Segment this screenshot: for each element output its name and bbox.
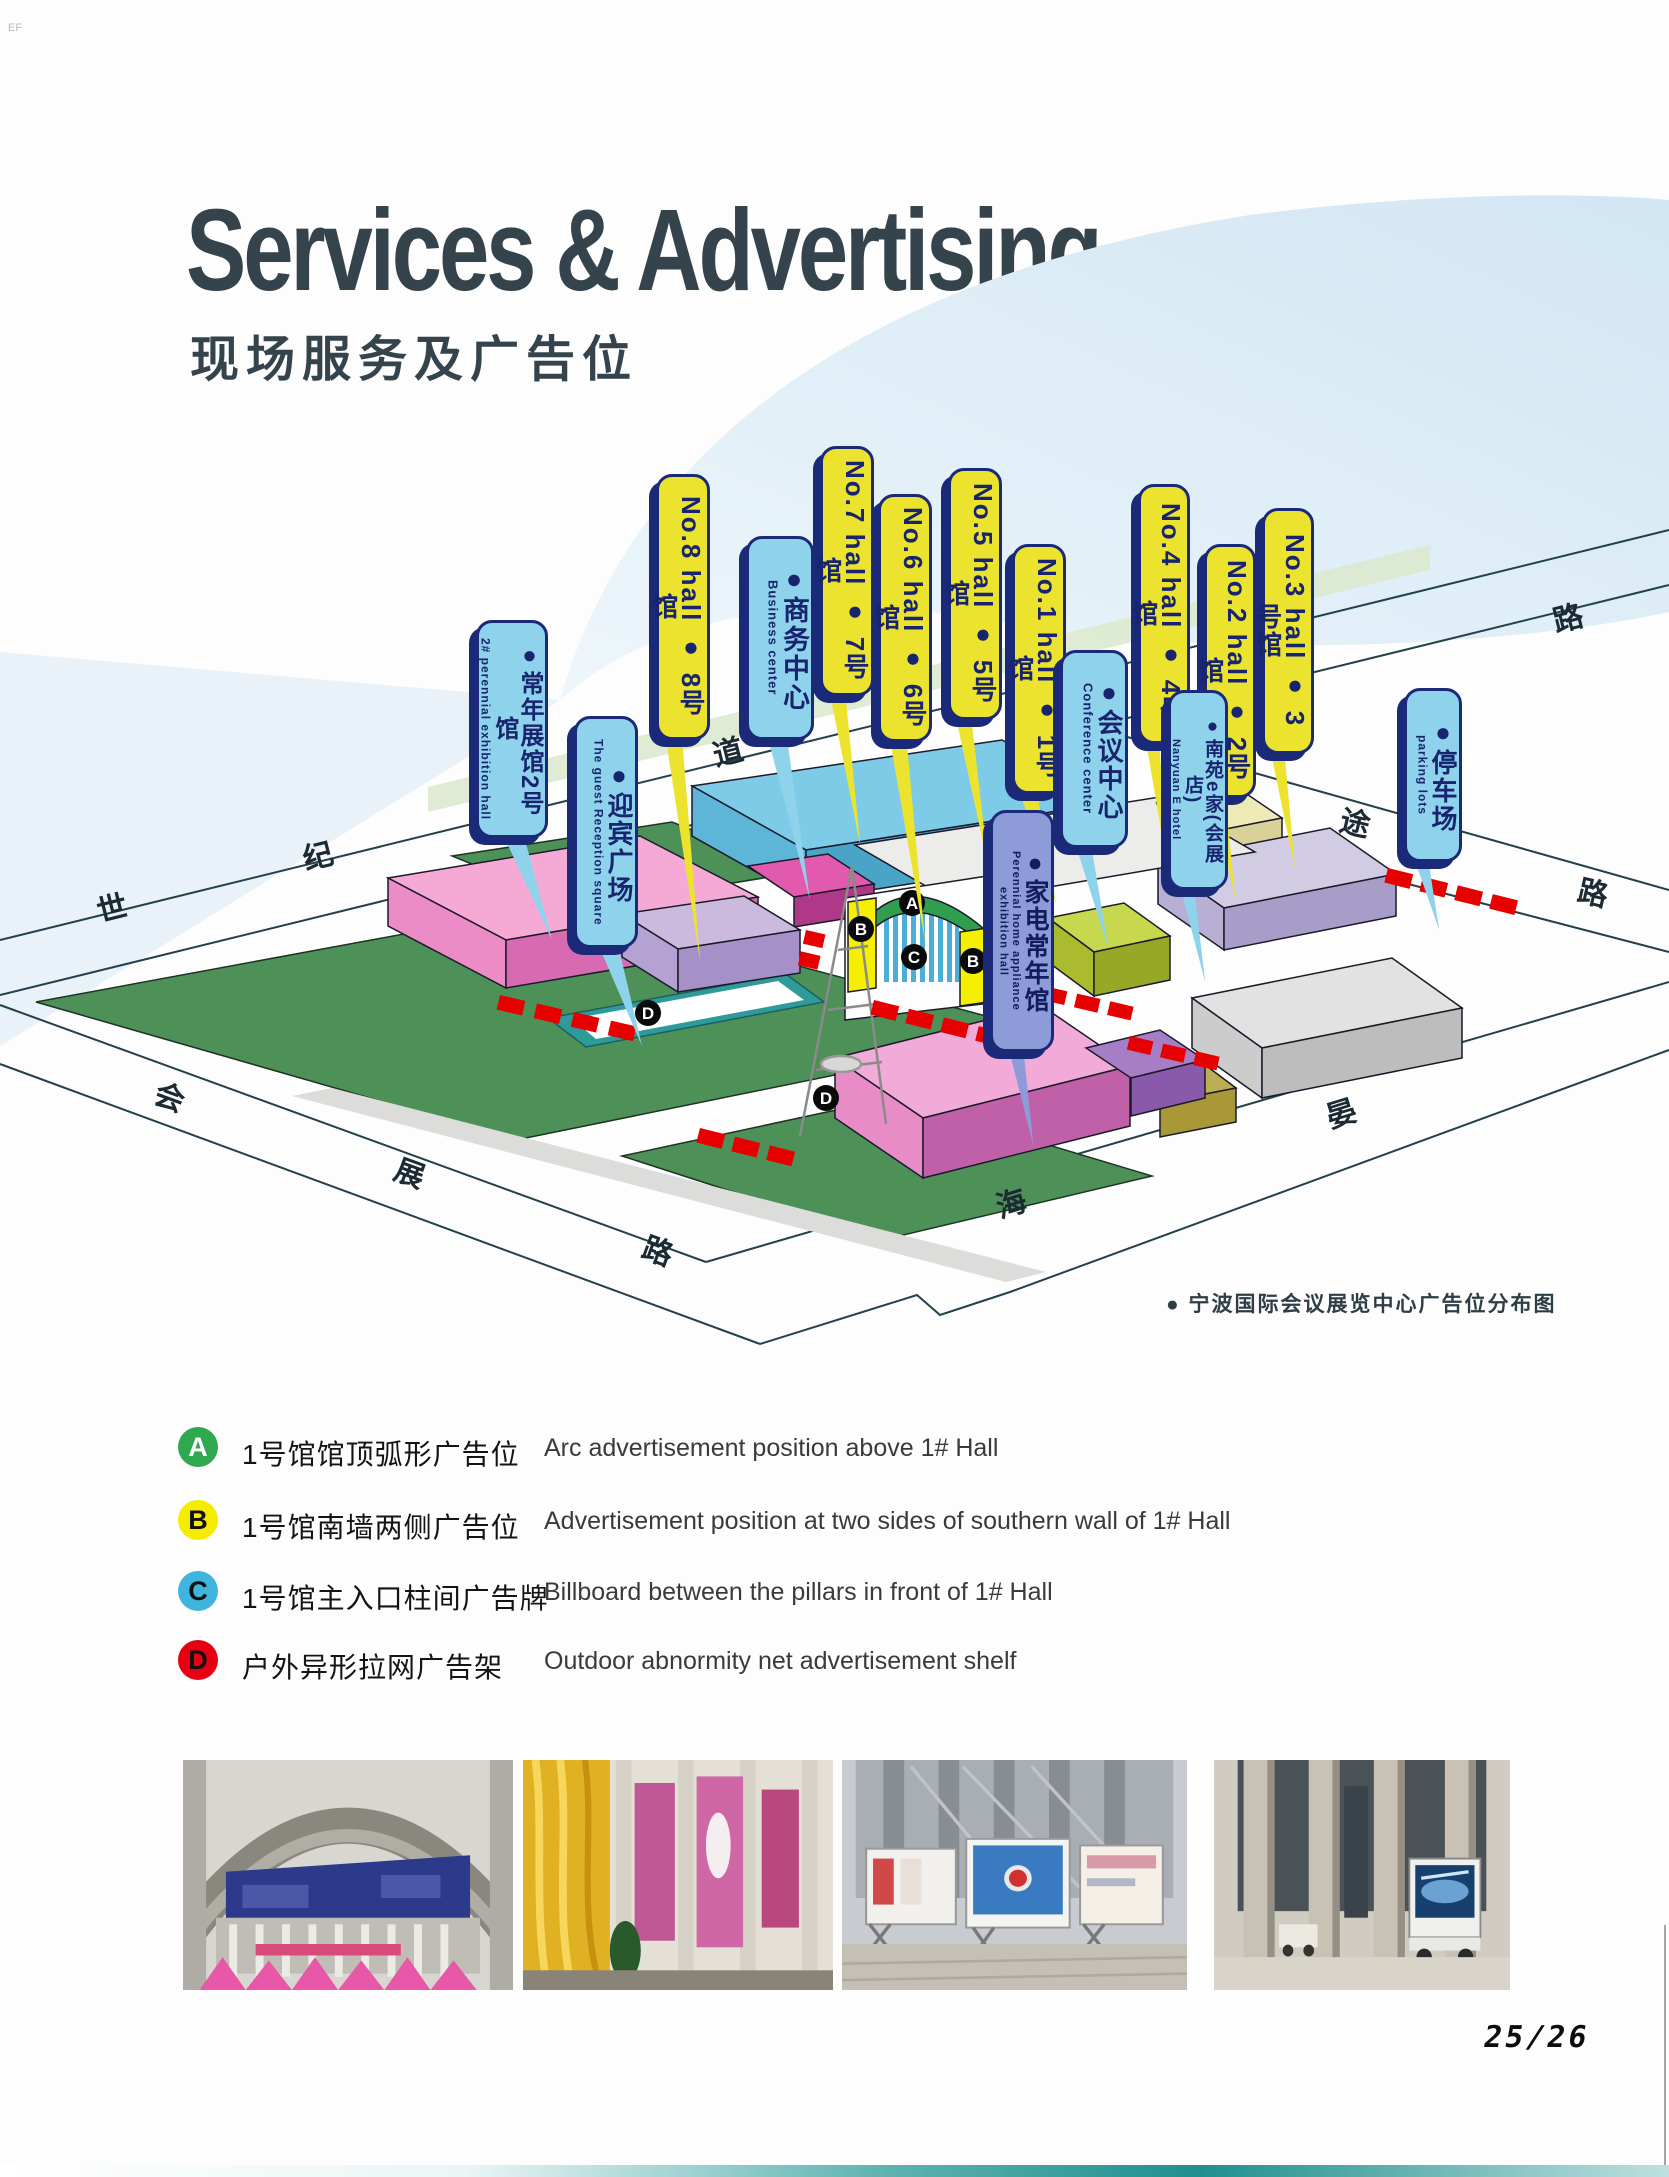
legend-cn-c: 1号馆主入口柱间广告牌 <box>242 1577 549 1617</box>
legend-cn-a: 1号馆馆顶弧形广告位 <box>242 1433 520 1473</box>
banner-hall-5: No.5 hall ● 5号馆 <box>948 468 1002 720</box>
photo-arc-banner-hall1 <box>183 1760 513 1990</box>
map-caption: ● 宁波国际会议展览中心广告位分布图 <box>1166 1288 1557 1318</box>
street-char: 路 <box>1574 875 1612 914</box>
banner-label: ●南苑e家(会展店) <box>1182 703 1222 877</box>
banner-label: ●会议中心 <box>1095 663 1122 835</box>
svg-text:D: D <box>820 1089 832 1108</box>
banner-sublabel: The guest Reception square <box>592 729 605 935</box>
banner-sublabel: Nanyuan E hotel <box>1170 703 1182 877</box>
svg-text:B: B <box>855 920 867 939</box>
banner-sublabel: Business center <box>765 549 779 727</box>
banner-sublabel: Perennial home appliance exhibition hall <box>998 823 1022 1039</box>
legend-en-d: Outdoor abnormity net advertisement shel… <box>544 1647 1016 1676</box>
street-char: 纪 <box>300 838 337 877</box>
banner-label: No.3 hall ● 3号馆 <box>1253 521 1308 741</box>
photo-curtain-posters <box>523 1760 833 1990</box>
legend-circle-d: D <box>178 1640 218 1680</box>
street-char: 会 <box>150 1078 189 1119</box>
legend-cn-b: 1号馆南墙两侧广告位 <box>242 1506 520 1546</box>
page-number: 25/26 <box>1481 2020 1592 2055</box>
banner-label: ●迎宾广场 <box>605 729 632 935</box>
svg-text:C: C <box>908 948 920 967</box>
street-char: 晏 <box>1322 1094 1360 1134</box>
legend-circle-b: B <box>178 1500 218 1540</box>
photo-net-billboards <box>842 1760 1187 1990</box>
photo-billboards-image <box>842 1760 1187 1990</box>
bottom-accent-strip <box>0 2165 1669 2177</box>
building-gray <box>1192 958 1462 1098</box>
legend-circle-c: C <box>178 1571 218 1611</box>
banner-hall-7: No.7 hall ● 7号馆 <box>820 446 874 696</box>
brochure-page: EF Services & Advertising 现场服务及广告位 <box>0 0 1669 2177</box>
street-char: 途 <box>1336 804 1374 844</box>
banner-conference-center: ●会议中心 Conference center <box>1060 650 1128 848</box>
svg-text:D: D <box>642 1004 654 1023</box>
photo-curtain-image <box>523 1760 833 1990</box>
banner-label: ●常年展馆2号馆 <box>492 633 542 825</box>
legend-en-c: Billboard between the pillars in front o… <box>544 1578 1053 1607</box>
banner-nanyuan-e-home: ●南苑e家(会展店) Nanyuan E hotel <box>1168 690 1228 890</box>
photo-led-screen-truck <box>1214 1760 1510 1990</box>
banner-label: No.6 hall ● 6号馆 <box>871 507 926 729</box>
legend-cn-d: 户外异形拉网广告架 <box>242 1646 503 1686</box>
banner-hall-3: No.3 hall ● 3号馆 <box>1262 508 1314 754</box>
building-yellow-green <box>1048 903 1170 996</box>
banner-perennial-2: ●常年展馆2号馆 2# perennial exhibition hall <box>476 620 548 838</box>
banner-label: No.5 hall ● 5号馆 <box>941 481 996 707</box>
banner-sublabel: parking lots <box>1416 701 1429 849</box>
banner-label: No.8 hall ● 8号馆 <box>649 487 704 727</box>
photo-led-truck-image <box>1214 1760 1510 1990</box>
banner-hall-6: No.6 hall ● 6号馆 <box>878 494 932 742</box>
street-char: 道 <box>710 734 747 773</box>
page-edge-line <box>1664 1925 1666 2177</box>
svg-text:A: A <box>906 894 918 913</box>
banner-label: ●商务中心 <box>780 549 808 727</box>
banner-sublabel: Conference center <box>1080 663 1094 835</box>
banner-sublabel: 2# perennial exhibition hall <box>478 633 491 825</box>
svg-text:B: B <box>967 952 979 971</box>
legend-en-b: Advertisement position at two sides of s… <box>544 1507 1230 1536</box>
photo-arc-banner-image <box>183 1760 513 1990</box>
marker-C: C <box>901 944 927 970</box>
banner-label: ●家电常年馆 <box>1022 823 1048 1039</box>
marker-B-right: B <box>960 948 986 974</box>
legend-circle-a: A <box>178 1427 218 1467</box>
banner-parking: ●停车场 parking lots <box>1404 688 1462 862</box>
marker-B-left: B <box>848 916 874 942</box>
banner-business-center: ●商务中心 Business center <box>746 536 814 740</box>
banner-label: No.7 hall ● 7号馆 <box>813 459 868 683</box>
banner-hall-1: No.1 hall ● 1号馆 <box>1012 544 1066 794</box>
banner-reception-square: ●迎宾广场 The guest Reception square <box>574 716 638 948</box>
street-char: 路 <box>638 1232 678 1274</box>
banner-label: ●停车场 <box>1429 701 1456 849</box>
marker-D-left: D <box>635 1000 661 1026</box>
banner-label: No.1 hall ● 1号馆 <box>1005 557 1060 781</box>
legend-en-a: Arc advertisement position above 1# Hall <box>544 1434 998 1463</box>
banner-hall-8: No.8 hall ● 8号馆 <box>656 474 710 740</box>
marker-D-center: D <box>813 1085 839 1111</box>
banner-appliance-hall: ●家电常年馆 Perennial home appliance exhibiti… <box>990 810 1054 1052</box>
